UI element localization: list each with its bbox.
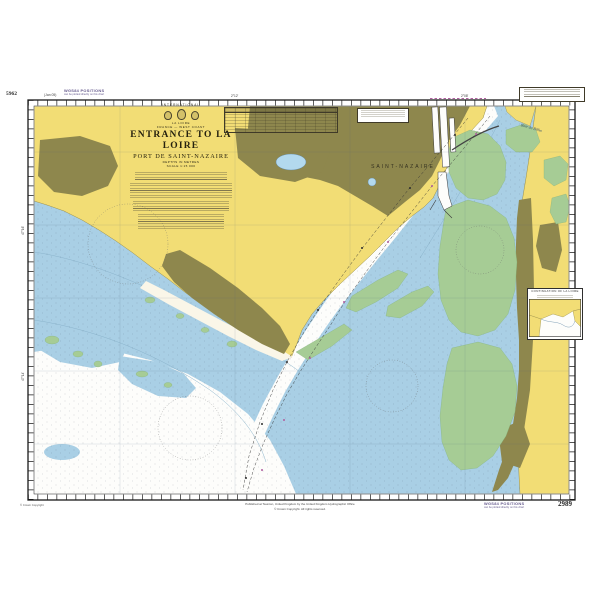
- tidal-table: [224, 107, 338, 133]
- svg-text:47°14': 47°14': [21, 372, 25, 381]
- publication-note: Published at Taunton, United Kingdom by …: [150, 502, 450, 511]
- notes-paragraph: [133, 201, 229, 212]
- emblem-row: [123, 109, 239, 120]
- lake: [276, 154, 306, 170]
- wgs84-subtitle: can be plotted directly on this chart: [64, 93, 184, 96]
- chart-title: ENTRANCE TO LA LOIRE: [123, 130, 239, 154]
- publication-line2: © Crown Copyright. All rights reserved.: [150, 507, 450, 512]
- source-note-box: [519, 87, 585, 102]
- notes-paragraph: [130, 183, 232, 198]
- notes-paragraph: [135, 172, 227, 181]
- land-note-text: [361, 110, 405, 118]
- iho-emblem-icon: [164, 111, 172, 120]
- chart-number: 2989: [558, 500, 572, 508]
- inset-subtitle-text: [537, 295, 573, 298]
- hydrographic-office-emblem-icon: [191, 111, 199, 120]
- notes-paragraph: [138, 214, 224, 231]
- wgs84-note-bottom: WGS84 POSITIONS can be plotted directly …: [484, 502, 554, 509]
- copyright-note: © Crown Copyright: [20, 503, 44, 507]
- national-crest-icon: [177, 109, 186, 120]
- svg-text:2°12': 2°12': [231, 94, 239, 98]
- inset-title: CONTINUATION OF LA LOIRE: [528, 289, 582, 294]
- edition-date: (Jan 05): [44, 93, 56, 97]
- inset-map: [529, 299, 581, 337]
- nautical-chart-sheet: SAINT-NAZAIRE Baie de Bilho 2°12' 2°08' …: [0, 0, 600, 600]
- title-block: INTERNATIONAL LA LOIRE FRANCE — WEST COA…: [123, 103, 239, 231]
- source-note-text: [524, 89, 580, 97]
- wgs84-subtitle: can be plotted directly on this chart: [484, 506, 554, 509]
- city-label: SAINT-NAZAIRE: [371, 164, 435, 170]
- tidal-table-header: [225, 108, 337, 113]
- international-label: INTERNATIONAL: [123, 103, 239, 107]
- land-note-box: [357, 108, 409, 123]
- continuation-inset: CONTINUATION OF LA LOIRE: [527, 288, 583, 340]
- caution-note-line: [430, 98, 486, 100]
- pond: [368, 178, 376, 186]
- wgs84-note-top: WGS84 POSITIONS can be plotted directly …: [64, 89, 184, 96]
- svg-text:47°16': 47°16': [21, 226, 25, 235]
- adjacent-chart-number: 5962: [6, 91, 17, 97]
